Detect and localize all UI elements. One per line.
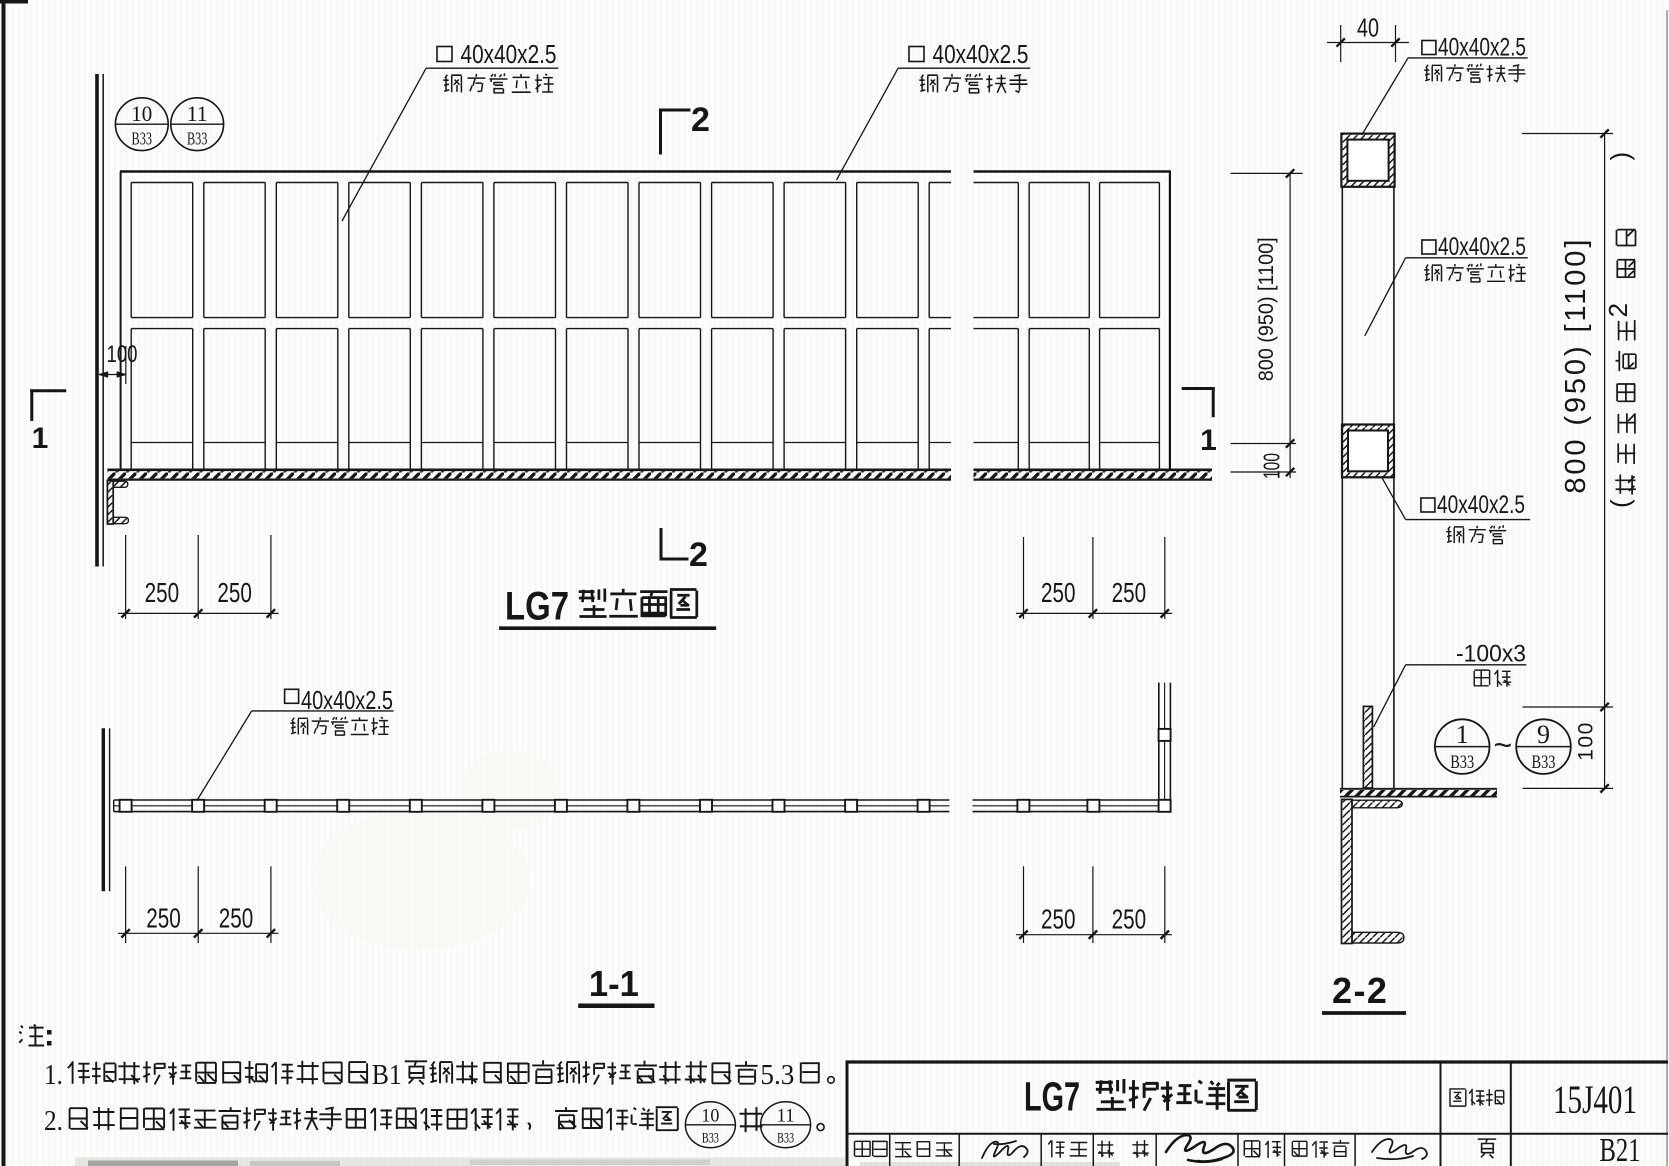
svg-text:40: 40 [1357,13,1379,42]
svg-text:B33: B33 [1450,751,1474,772]
svg-text:40x40x2.5: 40x40x2.5 [1437,491,1525,519]
svg-text:B33: B33 [702,1130,719,1146]
svg-text:250: 250 [217,578,251,609]
svg-text:800 (950) [1100]: 800 (950) [1100] [1560,237,1592,494]
svg-text:2: 2 [691,101,710,139]
svg-text:250: 250 [1041,578,1075,609]
svg-text:B33: B33 [187,129,208,149]
svg-text:250: 250 [145,578,179,609]
svg-text:1-1: 1-1 [589,964,639,1004]
svg-text:100: 100 [1575,721,1598,760]
svg-text:40x40x2.5: 40x40x2.5 [1438,33,1526,61]
svg-text:800 (950) [1100]: 800 (950) [1100] [1256,237,1279,381]
svg-text:1: 1 [1456,720,1469,749]
svg-text:2-2: 2-2 [1332,970,1388,1011]
svg-text:11: 11 [187,101,208,126]
svg-text:B33: B33 [777,1130,794,1146]
svg-text:9: 9 [1537,720,1550,749]
svg-text:40x40x2.5: 40x40x2.5 [1438,233,1526,261]
svg-text:2: 2 [1603,303,1633,317]
svg-text:10: 10 [701,1106,719,1127]
svg-text:B21: B21 [1600,1132,1641,1166]
svg-text:1: 1 [32,422,49,455]
svg-text:(: ( [1605,499,1635,508]
svg-text:10: 10 [131,102,152,127]
svg-text:1.: 1. [44,1059,63,1090]
svg-text:LG7: LG7 [1024,1073,1080,1119]
svg-text:2: 2 [689,536,708,574]
svg-text:5.3: 5.3 [760,1059,794,1090]
svg-text:250: 250 [1112,905,1146,936]
svg-text:250: 250 [219,904,253,935]
svg-text:B33: B33 [1532,751,1556,772]
svg-text:~: ~ [1493,727,1512,763]
svg-text:250: 250 [1112,578,1146,609]
svg-text:11: 11 [777,1105,795,1126]
svg-text:LG7: LG7 [505,583,569,628]
svg-text:-100x3: -100x3 [1456,640,1526,667]
svg-text:100: 100 [107,341,138,368]
svg-text:1: 1 [1200,424,1217,457]
svg-text:250: 250 [1041,905,1075,936]
svg-text:B1: B1 [372,1059,402,1090]
svg-text:250: 250 [146,904,180,935]
svg-text:B33: B33 [132,129,153,149]
svg-text:): ) [1605,152,1635,161]
svg-text:40x40x2.5: 40x40x2.5 [461,40,557,69]
svg-text:2.: 2. [44,1105,63,1136]
svg-text:100: 100 [1260,453,1286,479]
svg-text:40x40x2.5: 40x40x2.5 [933,40,1029,69]
svg-text:15J401: 15J401 [1553,1078,1637,1123]
